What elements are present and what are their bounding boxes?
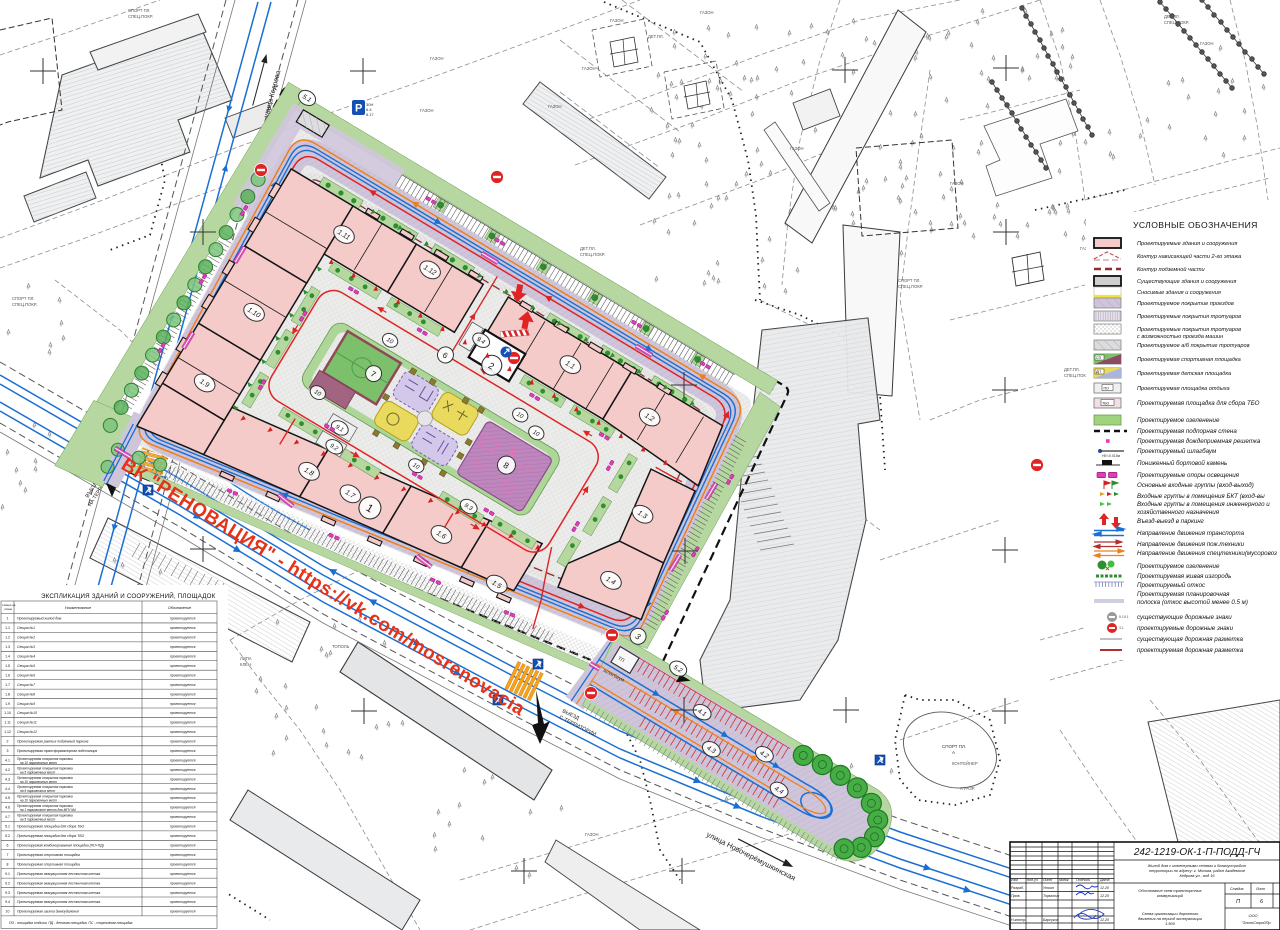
svg-text:Стадия: Стадия: [1230, 887, 1244, 891]
svg-text:НЕ<0.015м: НЕ<0.015м: [1102, 454, 1121, 458]
svg-text:Проектируемая эвакуационная ле: Проектируемая эвакуационная лестничная к…: [17, 881, 100, 885]
svg-text:Секция №1: Секция №1: [17, 626, 35, 630]
svg-text:9.3: 9.3: [5, 891, 10, 895]
svg-text:12.20: 12.20: [1100, 886, 1109, 890]
svg-text:А РАЗР.: А РАЗР.: [960, 786, 975, 791]
svg-text:1.7: 1.7: [5, 683, 10, 687]
svg-text:Наименование: Наименование: [65, 606, 91, 610]
svg-text:Уткин: Уткин: [1043, 886, 1054, 890]
svg-text:Подпись: Подпись: [1076, 878, 1090, 882]
svg-text:СПОРТ ПЛ.: СПОРТ ПЛ.: [12, 296, 35, 301]
svg-text:Входные группы в помещения инж: Входные группы в помещения инженерного и: [1137, 501, 1270, 508]
svg-text:на 10 парковочных мест: на 10 парковочных мест: [20, 799, 57, 803]
svg-text:ГАЗОН: ГАЗОН: [420, 108, 434, 113]
svg-text:проектируется: проектируется: [170, 910, 196, 914]
svg-text:П: П: [1236, 899, 1240, 905]
svg-text:Обозначение: Обозначение: [168, 606, 191, 610]
svg-text:Проектируемая эвакуационная ле: Проектируемая эвакуационная лестничная к…: [17, 900, 100, 904]
svg-text:проектируется: проектируется: [170, 749, 196, 753]
svg-text:1.3: 1.3: [5, 645, 10, 649]
svg-text:Проектируемая подпорная стена: Проектируемая подпорная стена: [1137, 428, 1237, 435]
svg-text:5.1: 5.1: [5, 825, 10, 829]
svg-text:Контур подземной части: Контур подземной части: [1137, 266, 1205, 273]
svg-text:существующие дорожные знаки: существующие дорожные знаки: [1137, 614, 1232, 621]
svg-text:проектируется: проектируется: [170, 834, 196, 838]
svg-text:проектируется: проектируется: [170, 787, 196, 791]
svg-text:Пониженный бортовой камень: Пониженный бортовой камень: [1137, 460, 1227, 467]
svg-text:Секция №5: Секция №5: [17, 664, 35, 668]
svg-text:1.11: 1.11: [4, 721, 11, 725]
svg-text:Секция №2: Секция №2: [17, 636, 35, 640]
svg-text:проектируется: проектируется: [170, 844, 196, 848]
svg-text:Лист: Лист: [1042, 878, 1052, 882]
svg-text:12.20: 12.20: [1100, 918, 1109, 922]
svg-text:коммуникаций: коммуникаций: [1157, 893, 1184, 898]
svg-text:Лист: Лист: [1255, 887, 1265, 891]
svg-text:Проектируемая площадка для сбо: Проектируемая площадка для сбора ТБО: [1137, 400, 1260, 407]
svg-text:12.20: 12.20: [1100, 894, 1109, 898]
svg-text:5.19.1: 5.19.1: [1119, 615, 1129, 619]
svg-text:ТОПОЛЬ: ТОПОЛЬ: [332, 644, 350, 649]
svg-text:Проектируемая детская площадка: Проектируемая детская площадка: [1137, 371, 1231, 377]
svg-text:на 10 парковочных мест: на 10 парковочных мест: [20, 761, 57, 765]
svg-text:1.10: 1.10: [4, 711, 11, 715]
svg-text:на 5 парковочных мест: на 5 парковочных мест: [20, 770, 56, 774]
svg-text:проектируемая дорожная разметк: проектируемая дорожная разметка: [1137, 647, 1244, 654]
svg-text:ГАЗОН: ГАЗОН: [430, 56, 444, 61]
svg-text:ООО: ООО: [1248, 913, 1257, 918]
svg-text:проектируется: проектируется: [170, 806, 196, 810]
svg-text:1.6: 1.6: [5, 673, 10, 677]
svg-text:СПОРТ ПЛ.: СПОРТ ПЛ.: [128, 8, 151, 13]
svg-text:1.5: 1.5: [5, 664, 10, 668]
svg-text:проектируемые дорожные знаки: проектируемые дорожные знаки: [1137, 625, 1234, 632]
svg-text:проектируется: проектируется: [170, 711, 196, 715]
svg-text:ГАЗОН: ГАЗОН: [582, 66, 596, 71]
svg-text:Проектируемая эвакуационная ле: Проектируемая эвакуационная лестничная к…: [17, 872, 100, 876]
svg-text:СПЕЦ.ПОКР.: СПЕЦ.ПОКР.: [580, 252, 605, 257]
svg-text:1.12: 1.12: [4, 730, 11, 734]
svg-text:Кол.уч: Кол.уч: [1027, 878, 1038, 882]
svg-text:проектируется: проектируется: [170, 626, 196, 630]
svg-text:9.1: 9.1: [5, 872, 10, 876]
svg-text:Входные группы в помещения БКТ: Входные группы в помещения БКТ (вход-вы: [1137, 493, 1265, 500]
svg-text:P: P: [355, 103, 362, 115]
svg-text:ГАЗОН: ГАЗОН: [790, 146, 804, 151]
svg-text:Секция №11: Секция №11: [17, 721, 37, 725]
svg-text:Проектируемый откос: Проектируемый откос: [1137, 582, 1206, 589]
svg-text:Контур нависающей части 2-го э: Контур нависающей части 2-го этажа: [1137, 253, 1241, 260]
svg-text:ГАЗОН: ГАЗОН: [700, 10, 714, 15]
svg-text:Проектируемая планировочная: Проектируемая планировочная: [1137, 591, 1230, 598]
svg-text:ДП: ДП: [1096, 370, 1101, 374]
svg-text:Н.контр.: Н.контр.: [1011, 918, 1026, 922]
svg-text:ДЕТ.ПЛ.: ДЕТ.ПЛ.: [1064, 367, 1080, 372]
svg-text:4.1: 4.1: [5, 759, 10, 763]
svg-text:Проектируемые здания и сооруже: Проектируемые здания и сооружения: [1137, 241, 1237, 247]
svg-text:4.4: 4.4: [5, 787, 10, 791]
svg-text:проектируется: проектируется: [170, 692, 196, 696]
svg-text:1.4: 1.4: [5, 655, 10, 659]
svg-text:ПО - площадка отдыха, ПД - дет: ПО - площадка отдыха, ПД - детская площа…: [9, 921, 133, 925]
svg-text:Проектируемая рампа в подземны: Проектируемая рампа в подземный паркинг: [17, 740, 89, 744]
svg-text:Дата: Дата: [1099, 878, 1109, 882]
svg-text:5.2: 5.2: [5, 834, 10, 838]
svg-text:проектируется: проектируется: [170, 815, 196, 819]
svg-text:4.3: 4.3: [5, 777, 10, 781]
svg-text:Сносимые здания и сооружения: Сносимые здания и сооружения: [1137, 290, 1221, 296]
svg-text:ПО: ПО: [1104, 387, 1110, 391]
svg-text:СПЕЦ.ПОКР.: СПЕЦ.ПОКР.: [898, 284, 923, 289]
svg-text:4.5: 4.5: [5, 796, 10, 800]
svg-text:1.9: 1.9: [5, 702, 10, 706]
svg-text:Проектируемая комбинированная: Проектируемая комбинированная площадка (…: [17, 844, 104, 848]
svg-text:Проектируемая эвакуационная ле: Проектируемая эвакуационная лестничная к…: [17, 891, 100, 895]
svg-text:Секция №10: Секция №10: [17, 711, 37, 715]
svg-text:ДЕТ.ПЛ.: ДЕТ.ПЛ.: [648, 34, 664, 39]
svg-text:проектируется: проектируется: [170, 891, 196, 895]
svg-text:Проектируемая живая изгородь: Проектируемая живая изгородь: [1137, 573, 1231, 580]
svg-text:"ЭлитСтройПр: "ЭлитСтройПр: [1241, 920, 1271, 925]
svg-text:проектируется: проектируется: [170, 872, 196, 876]
svg-text:3.1: 3.1: [1119, 626, 1124, 630]
svg-text:ГАЗОН: ГАЗОН: [950, 181, 964, 186]
svg-text:Въезд-выезд в паркинг: Въезд-выезд в паркинг: [1137, 518, 1204, 525]
svg-text:проектируется: проектируется: [170, 825, 196, 829]
svg-text:Секция №8: Секция №8: [17, 692, 35, 696]
svg-text:Проектируемый жилой дом: Проектируемый жилой дом: [17, 617, 62, 621]
svg-text:существующая дорожная разметка: существующая дорожная разметка: [1137, 636, 1244, 643]
svg-text:Проектируемая спортивная площа: Проектируемая спортивная площадка: [17, 853, 80, 857]
svg-text:проектируется: проектируется: [170, 862, 196, 866]
svg-text:ГАЗОН: ГАЗОН: [585, 832, 599, 837]
svg-text:плане: плане: [4, 607, 12, 611]
svg-text:1.2: 1.2: [5, 636, 10, 640]
svg-text:Существующие здания и сооружен: Существующие здания и сооружения: [1137, 279, 1236, 285]
svg-text:Проектируемое покрытие проездо: Проектируемое покрытие проездов: [1137, 301, 1234, 307]
svg-text:Проектируемые опоры освещения: Проектируемые опоры освещения: [1137, 472, 1240, 479]
svg-text:проектируется: проектируется: [170, 683, 196, 687]
svg-text:№док: №док: [1059, 878, 1069, 882]
svg-text:3: 3: [7, 749, 9, 753]
svg-text:проектируется: проектируется: [170, 673, 196, 677]
svg-text:ГАЗОН: ГАЗОН: [1200, 41, 1214, 46]
svg-text:СПЕЦ.ПОКР.: СПЕЦ.ПОКР.: [1064, 373, 1089, 378]
svg-text:Проектируемая спортивная площа: Проектируемая спортивная площадка: [17, 862, 80, 866]
svg-text:Проектируемая трансформаторная: Проектируемая трансформаторная подстанци…: [17, 749, 97, 753]
svg-text:Проектируемые покрытия тротуар: Проектируемые покрытия тротуаров: [1137, 327, 1241, 333]
svg-text:хозяйственного назначения: хозяйственного назначения: [1136, 509, 1220, 516]
svg-text:ЭКСПЛИКАЦИЯ ЗДАНИЙ И СООРУЖЕНИ: ЭКСПЛИКАЦИЯ ЗДАНИЙ И СООРУЖЕНИЙ, ПЛОЩАДО…: [41, 592, 216, 600]
svg-text:Секция №9: Секция №9: [17, 702, 35, 706]
svg-text:Проектируемое а/б покрытие тро: Проектируемое а/б покрытие тротуаров: [1137, 343, 1250, 349]
svg-text:проектируется: проектируется: [170, 617, 196, 621]
svg-text:СПОРТ ПЛ.: СПОРТ ПЛ.: [942, 744, 966, 749]
svg-text:СПЕЦ.ПОКР.: СПЕЦ.ПОКР.: [128, 14, 153, 19]
svg-text:4.7: 4.7: [5, 815, 10, 819]
svg-text:ГАЗОН: ГАЗОН: [610, 18, 624, 23]
svg-text:полоска (откос высотой менее 0: полоска (откос высотой менее 0.5 м): [1137, 599, 1248, 606]
svg-text:9.4: 9.4: [5, 900, 10, 904]
svg-text:СПОРТ ПЛ.: СПОРТ ПЛ.: [898, 278, 921, 283]
svg-text:Проектируемые покрытия тротуар: Проектируемые покрытия тротуаров: [1137, 314, 1241, 320]
svg-text:Проектируемая спортивная площа: Проектируемая спортивная площадка: [1137, 357, 1241, 363]
svg-text:на 10 парковочных мест: на 10 парковочных мест: [20, 780, 57, 784]
svg-text:Проектируемая шахта дымоудален: Проектируемая шахта дымоудаления: [17, 910, 79, 914]
svg-text:Изм: Изм: [1011, 878, 1018, 882]
svg-text:Пров.: Пров.: [1011, 894, 1020, 898]
svg-text:ТБО: ТБО: [1102, 402, 1110, 406]
svg-text:Секция №4: Секция №4: [17, 655, 35, 659]
svg-text:КОНТЕЙНЕР: КОНТЕЙНЕР: [952, 761, 978, 766]
svg-text:6: 6: [7, 844, 9, 848]
svg-text:Кедрова ул., влд 16: Кедрова ул., влд 16: [1179, 873, 1215, 878]
svg-text:Проектируемый шлагбаум: Проектируемый шлагбаум: [1137, 448, 1217, 455]
svg-text:А: А: [952, 750, 955, 755]
svg-text:Проектируемое озеленение: Проектируемое озеленение: [1137, 563, 1220, 570]
svg-text:проектируется: проектируется: [170, 702, 196, 706]
svg-text:проектируется: проектируется: [170, 881, 196, 885]
svg-text:СП: СП: [1096, 356, 1102, 360]
svg-text:1:500: 1:500: [1165, 921, 1176, 926]
svg-text:проектируется: проектируется: [170, 740, 196, 744]
svg-text:УСЛОВНЫЕ ОБОЗНАЧЕНИЯ: УСЛОВНЫЕ ОБОЗНАЧЕНИЯ: [1133, 220, 1258, 230]
svg-text:проектируется: проектируется: [170, 636, 196, 640]
svg-text:проектируется: проектируется: [170, 664, 196, 668]
svg-text:проектируется: проектируется: [170, 721, 196, 725]
svg-text:4.2: 4.2: [5, 768, 10, 772]
svg-text:с возможностью проезда машин: с возможностью проезда машин: [1137, 334, 1223, 340]
svg-text:на 9 парковочных мест: на 9 парковочных мест: [20, 789, 56, 793]
svg-text:Проектируемая площадка для сбо: Проектируемая площадка для сбора ТБО: [17, 834, 84, 838]
svg-text:7: 7: [7, 853, 9, 857]
svg-text:КЛЕН: КЛЕН: [240, 662, 251, 667]
svg-text:СПЕЦ.ПОКР.: СПЕЦ.ПОКР.: [1164, 20, 1189, 25]
svg-text:Направление движения транспорт: Направление движения транспорта: [1137, 530, 1245, 537]
svg-text:9.2: 9.2: [5, 881, 10, 885]
svg-text:Секция №6: Секция №6: [17, 673, 35, 677]
svg-text:проектируется: проектируется: [170, 796, 196, 800]
svg-text:Барсуков: Барсуков: [1043, 918, 1059, 922]
svg-text:10: 10: [6, 910, 10, 914]
svg-text:8.17: 8.17: [366, 112, 375, 117]
svg-text:Секция №12: Секция №12: [17, 730, 37, 734]
svg-text:8: 8: [7, 862, 9, 866]
svg-text:Проектируемая площадка для сбо: Проектируемая площадка для сбора ТБО: [17, 825, 84, 829]
svg-text:4.6: 4.6: [5, 806, 10, 810]
svg-text:Разраб.: Разраб.: [1011, 886, 1024, 890]
svg-text:Направление движения пож.техни: Направление движения пож.техники: [1137, 541, 1245, 548]
svg-text:Тормосин: Тормосин: [1043, 894, 1059, 898]
svg-text:ЛИПА: ЛИПА: [240, 656, 252, 661]
svg-text:2: 2: [7, 740, 9, 744]
svg-text:Основные входные группы (вход-: Основные входные группы (вход-выход): [1137, 482, 1254, 489]
svg-text:Направление движения спецтехни: Направление движения спецтехники(мусоров…: [1137, 550, 1277, 557]
svg-text:Секция №3: Секция №3: [17, 645, 35, 649]
svg-text:Секция №7: Секция №7: [17, 683, 35, 687]
svg-text:проектируется: проектируется: [170, 730, 196, 734]
svg-text:СПЕЦ.ПОКР.: СПЕЦ.ПОКР.: [12, 302, 37, 307]
svg-text:на 5 парковочных мест: на 5 парковочных мест: [20, 818, 56, 822]
svg-text:проектируется: проектируется: [170, 853, 196, 857]
svg-text:1.8: 1.8: [5, 692, 10, 696]
svg-text:проектируется: проектируется: [170, 655, 196, 659]
svg-text:ГАЗОН: ГАЗОН: [548, 104, 562, 109]
svg-text:проектируется: проектируется: [170, 759, 196, 763]
svg-text:Проектируемая площадка отдыха: Проектируемая площадка отдыха: [1137, 386, 1230, 392]
svg-text:Проектируемая дождеприемная ре: Проектируемая дождеприемная решетка: [1137, 438, 1261, 445]
svg-text:242-1219-ОК-1-П-ПОДД-ГЧ: 242-1219-ОК-1-П-ПОДД-ГЧ: [1133, 847, 1261, 858]
svg-text:Проектируемое озеленение: Проектируемое озеленение: [1137, 417, 1220, 424]
svg-text:1: 1: [7, 617, 9, 621]
svg-text:проектируется: проектируется: [170, 900, 196, 904]
svg-text:ДЕТ.ПЛ.: ДЕТ.ПЛ.: [1164, 14, 1180, 19]
svg-text:на 1 парковочное место для МГН: на 1 парковочное место для МГН М4: [20, 808, 76, 812]
svg-text:проектируется: проектируется: [170, 645, 196, 649]
svg-text:1.1: 1.1: [5, 626, 10, 630]
svg-text:проектируется: проектируется: [170, 768, 196, 772]
svg-text:проектируется: проектируется: [170, 777, 196, 781]
svg-text:ДЕТ.ПЛ.: ДЕТ.ПЛ.: [580, 246, 596, 251]
